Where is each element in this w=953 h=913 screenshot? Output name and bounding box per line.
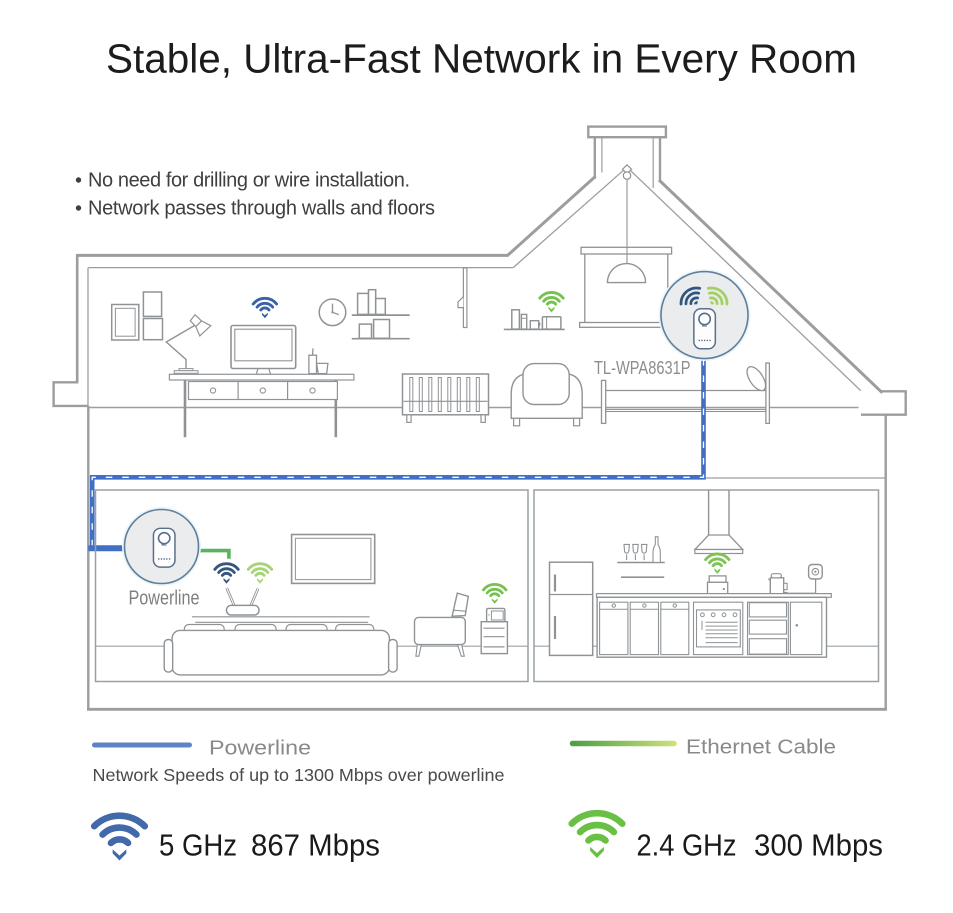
svg-text:Ethernet Cable: Ethernet Cable — [686, 736, 836, 759]
svg-text:TL-WPA8631P: TL-WPA8631P — [594, 358, 691, 378]
svg-text:No need for drilling or wire i: No need for drilling or wire installatio… — [88, 170, 410, 192]
svg-text:Network Speeds of up to 1300 M: Network Speeds of up to 1300 Mbps over p… — [93, 765, 505, 785]
svg-text:5 GHz: 5 GHz — [159, 828, 237, 863]
svg-text:Stable, Ultra-Fast Network in: Stable, Ultra-Fast Network in Every Room — [106, 36, 857, 82]
svg-text:Powerline: Powerline — [209, 737, 311, 760]
svg-text:867 Mbps: 867 Mbps — [251, 828, 380, 863]
svg-text:Powerline: Powerline — [129, 588, 200, 610]
svg-text:300 Mbps: 300 Mbps — [754, 828, 883, 863]
svg-text:2.4 GHz: 2.4 GHz — [637, 828, 737, 863]
svg-text:Network passes through walls a: Network passes through walls and floors — [88, 198, 435, 220]
